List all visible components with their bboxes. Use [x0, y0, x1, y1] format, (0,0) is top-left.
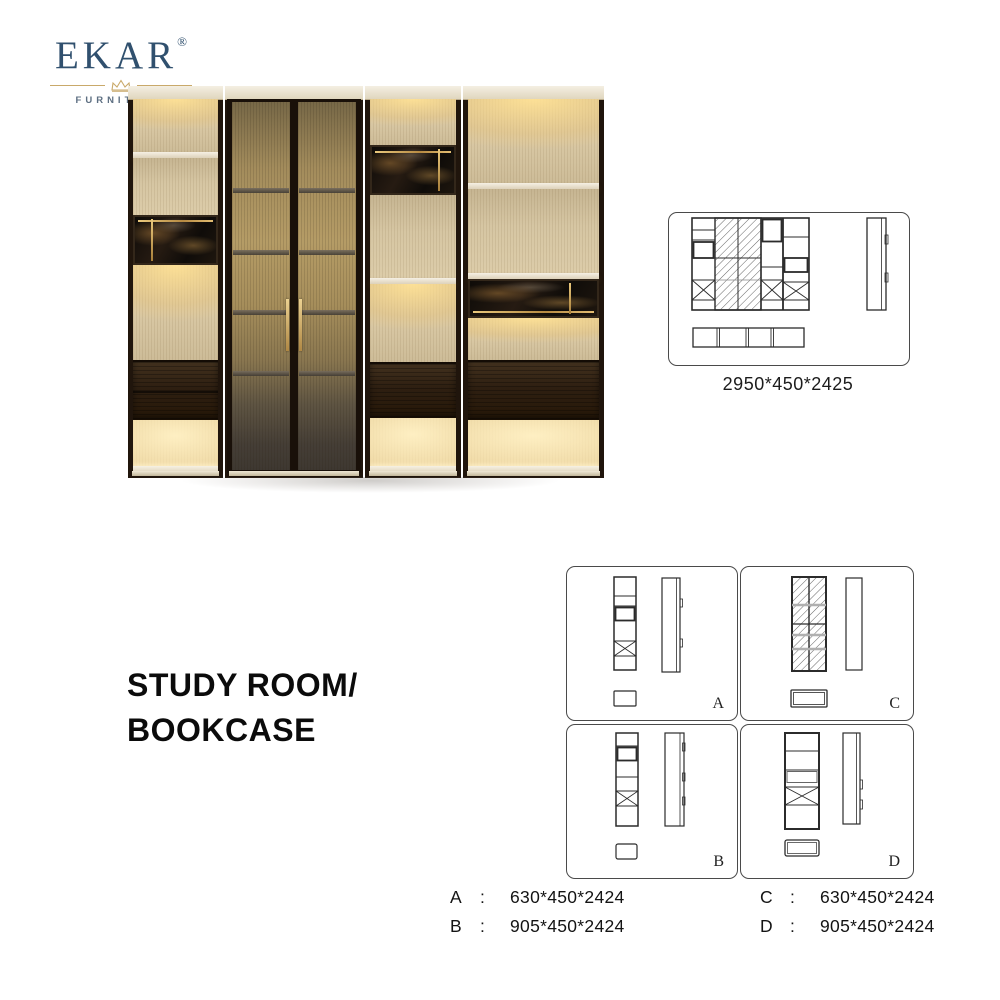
bookcase-unit-3: [365, 86, 461, 478]
bookcase-unit-1: [128, 86, 223, 478]
panel-b-diagram: B: [566, 724, 738, 879]
overview-drawing: [669, 213, 909, 365]
door-handle-right: [299, 299, 302, 351]
panel-d-drawing: [741, 725, 913, 878]
panel-label-a: A: [712, 695, 724, 713]
spec-colon: :: [480, 916, 510, 937]
panel-label-c: C: [889, 695, 900, 713]
overview-dimensions: 2950*450*2425: [668, 374, 908, 395]
drawer-front: [468, 360, 599, 420]
spec-colon: :: [790, 887, 820, 908]
panel-label-b: B: [713, 853, 724, 871]
panel-c-drawing: [741, 567, 913, 720]
page-title-line1: STUDY ROOM/: [127, 663, 358, 708]
spec-value: 905*450*2424: [510, 916, 668, 937]
overview-diagram: [668, 212, 910, 366]
spec-label: C: [760, 887, 790, 908]
panel-b-drawing: [567, 725, 737, 878]
glass-door-right: [295, 99, 359, 473]
spec-colon: :: [480, 887, 510, 908]
spec-value: 630*450*2424: [820, 887, 978, 908]
brand-name: EKAR: [55, 36, 177, 76]
marble-cabinet: [370, 145, 456, 195]
spec-list: A : 630*450*2424 C : 630*450*2424 B : 90…: [450, 887, 978, 937]
spec-label: B: [450, 916, 480, 937]
panel-label-d: D: [888, 853, 900, 871]
drawer-front: [370, 362, 456, 418]
registered-mark: ®: [177, 34, 187, 50]
panel-c-diagram: C: [740, 566, 914, 721]
glass-door-left: [229, 99, 293, 473]
panel-a-diagram: A: [566, 566, 738, 721]
marble-panel: [468, 279, 599, 318]
spec-label: A: [450, 887, 480, 908]
floor-shadow: [118, 477, 623, 507]
panel-d-diagram: D: [740, 724, 914, 879]
spec-label: D: [760, 916, 790, 937]
spec-colon: :: [790, 916, 820, 937]
page-title-line2: BOOKCASE: [127, 708, 358, 753]
product-photo: [128, 86, 606, 480]
door-handle-left: [286, 299, 289, 351]
marble-cabinet: [133, 215, 218, 265]
drawer-front: [133, 360, 218, 420]
spec-value: 905*450*2424: [820, 916, 978, 937]
bookcase-unit-4: [463, 86, 604, 478]
page-title: STUDY ROOM/ BOOKCASE: [127, 663, 358, 753]
bookcase-unit-2-glass: [225, 86, 363, 478]
spec-value: 630*450*2424: [510, 887, 668, 908]
